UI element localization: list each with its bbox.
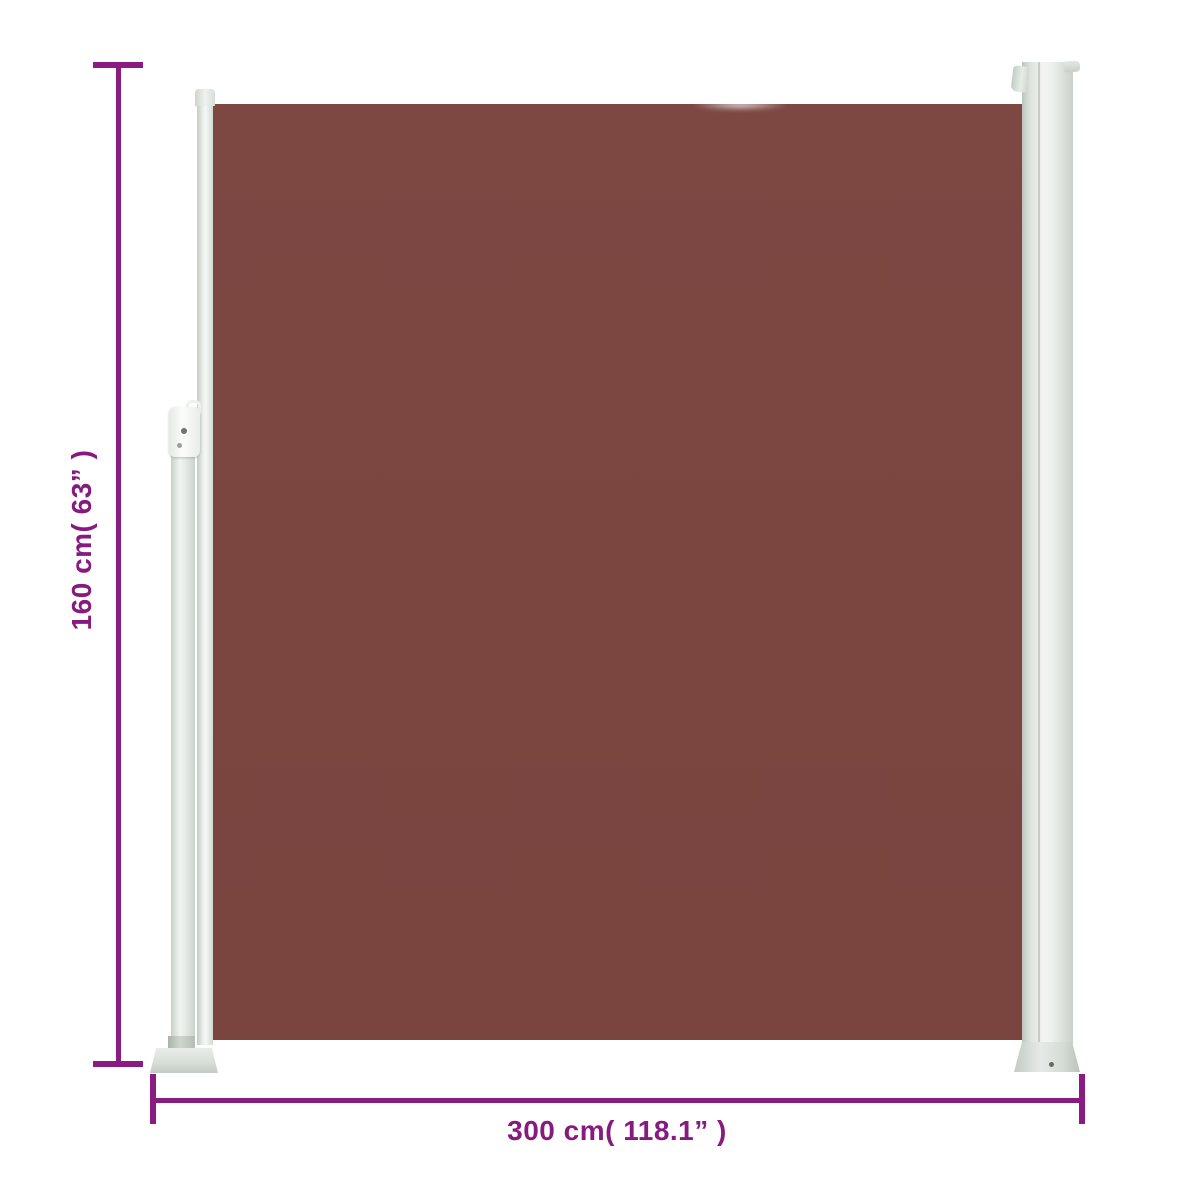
- front-support-pole: [171, 412, 195, 1057]
- cassette-post-seam: [1038, 62, 1040, 1072]
- left-base-plate: [150, 1048, 218, 1073]
- product-dimension-diagram: 160 cm( 63” ) 300 cm( 118.1” ): [0, 0, 1200, 1200]
- screw-icon: [177, 443, 182, 448]
- cassette-top-cap: [1064, 60, 1081, 72]
- cassette-post: [1022, 62, 1073, 1072]
- height-dimension-label: 160 cm( 63” ): [66, 450, 98, 631]
- height-dimension-cap-top: [93, 62, 143, 68]
- cassette-top-bracket: [1010, 65, 1029, 93]
- height-dimension-cap-bottom: [93, 1061, 143, 1067]
- width-dimension-cap-right: [1079, 1074, 1085, 1124]
- width-dimension-label: 300 cm( 118.1” ): [507, 1115, 727, 1147]
- awning-left-end-rail-cap: [195, 89, 215, 106]
- fabric-top-highlight: [690, 99, 790, 111]
- width-dimension-line: [152, 1098, 1083, 1103]
- height-dimension-line: [116, 63, 121, 1067]
- cassette-base-foot: [1014, 1042, 1080, 1072]
- screw-icon: [181, 428, 187, 434]
- screw-icon: [1049, 1062, 1054, 1067]
- awning-left-end-rail: [197, 92, 213, 1045]
- awning-fabric-panel: [210, 104, 1023, 1040]
- width-dimension-cap-left: [150, 1074, 156, 1124]
